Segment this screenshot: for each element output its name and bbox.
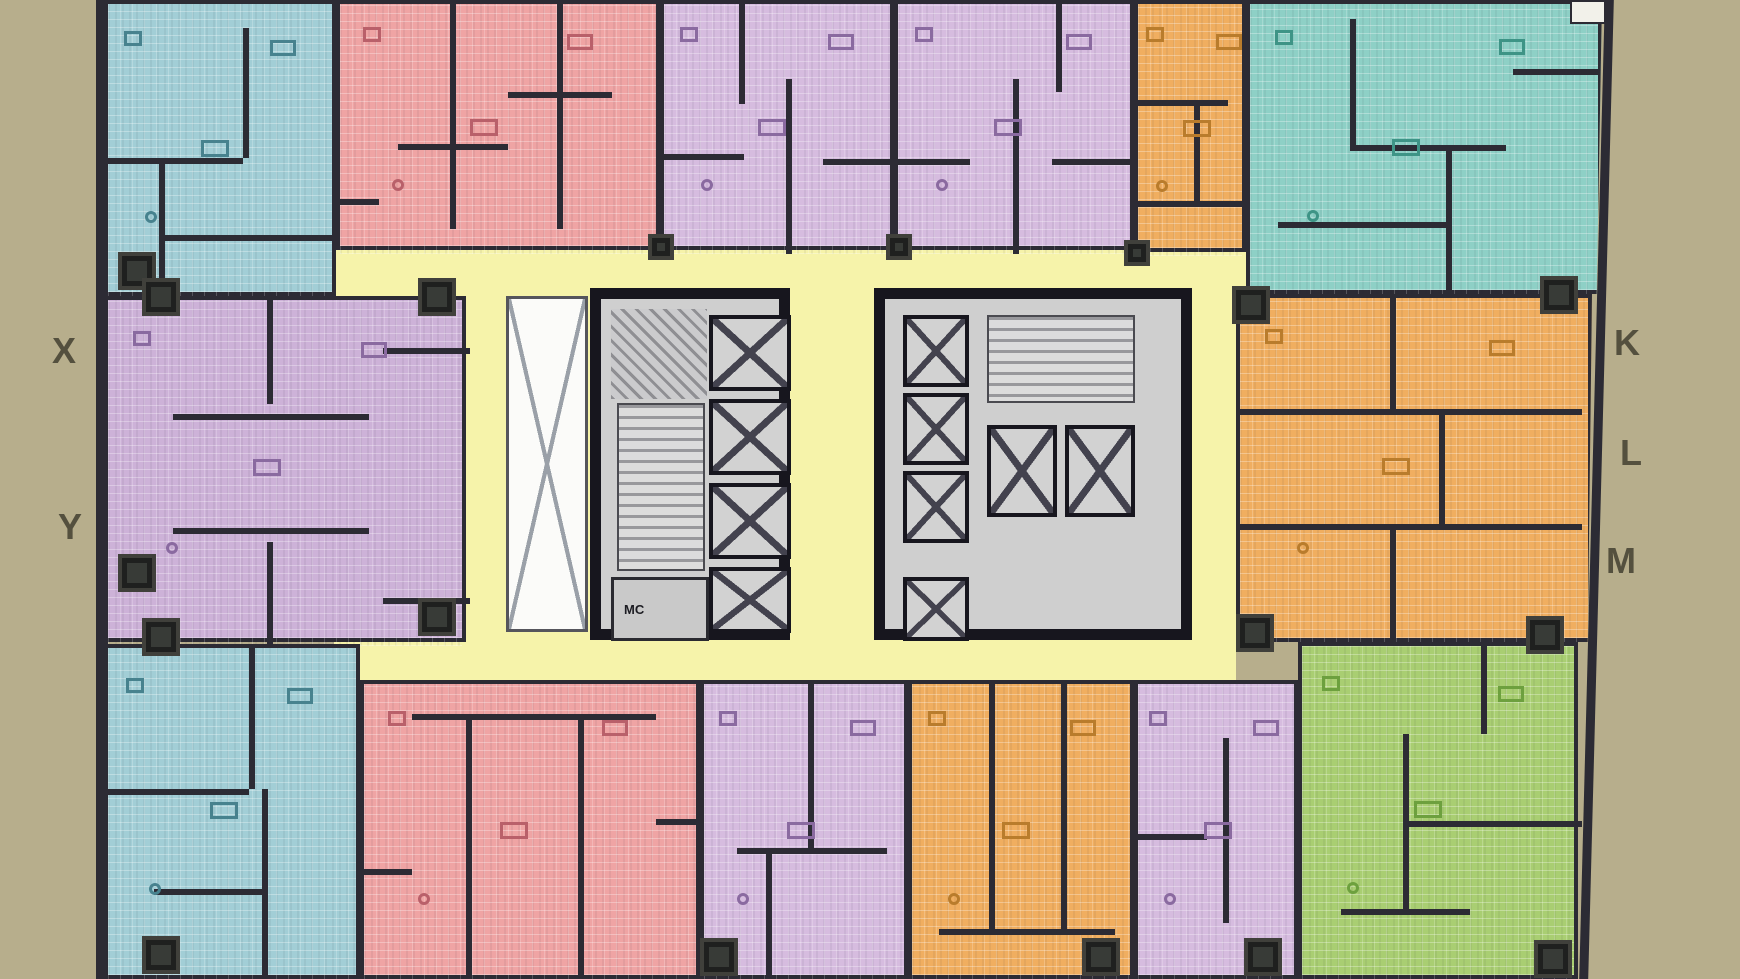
core-east <box>874 288 1192 640</box>
furniture-glyph <box>948 893 960 905</box>
interior-wall <box>159 235 340 241</box>
furniture-glyph <box>1156 180 1168 192</box>
interior-wall <box>1390 524 1396 646</box>
column-marker <box>142 278 180 316</box>
interior-wall <box>262 789 268 979</box>
furniture-glyph <box>1216 34 1242 50</box>
furniture-glyph <box>1066 34 1092 50</box>
grid-letter-l: L <box>1620 432 1642 474</box>
interior-wall <box>898 159 970 165</box>
grid-letter-k: K <box>1614 322 1640 364</box>
furniture-glyph <box>126 678 144 693</box>
column-marker <box>1244 938 1282 976</box>
interior-wall <box>786 79 792 254</box>
column-marker <box>886 234 912 260</box>
floor-plan: MC XYKLM <box>0 0 1740 979</box>
elevator-shaft-icon <box>903 393 969 465</box>
stair-shaft-x-icon <box>506 296 588 632</box>
interior-wall <box>989 684 995 929</box>
core-west: MC <box>590 288 790 640</box>
column-marker <box>1534 940 1572 978</box>
furniture-glyph <box>928 711 946 726</box>
furniture-glyph <box>201 140 229 157</box>
column-marker <box>1232 286 1270 324</box>
unit-orange-bottom <box>908 680 1134 979</box>
interior-wall <box>578 714 584 979</box>
machine-room-label: MC <box>624 602 644 617</box>
furniture-glyph <box>915 27 933 42</box>
grid-letter-y: Y <box>58 506 82 548</box>
interior-wall <box>766 848 772 979</box>
interior-wall <box>1341 909 1470 915</box>
furniture-glyph <box>787 822 815 839</box>
interior-wall <box>249 648 255 789</box>
unit-teal-bottom-left <box>104 644 360 979</box>
column-marker <box>1540 276 1578 314</box>
column-marker <box>1236 614 1274 652</box>
machine-room: MC <box>611 577 709 641</box>
interior-wall <box>1350 19 1356 145</box>
unit-pink-top <box>336 0 660 250</box>
furniture-glyph <box>1164 893 1176 905</box>
furniture-glyph <box>124 31 142 46</box>
interior-wall <box>737 848 887 854</box>
furniture-glyph <box>145 211 157 223</box>
unit-purple-bottom-b <box>1134 680 1298 979</box>
furniture-glyph <box>1499 39 1525 55</box>
interior-wall <box>1439 409 1445 524</box>
interior-wall <box>173 414 368 420</box>
interior-wall <box>108 789 249 795</box>
elevator-shaft-icon <box>1065 425 1135 517</box>
unit-pink-bottom <box>360 680 700 979</box>
furniture-glyph <box>1307 210 1319 222</box>
interior-wall <box>664 154 744 160</box>
furniture-glyph <box>392 179 404 191</box>
interior-wall <box>243 28 249 158</box>
furniture-glyph <box>994 119 1022 136</box>
stairs-icon <box>987 315 1135 403</box>
furniture-glyph <box>470 119 498 136</box>
interior-wall <box>1138 100 1228 106</box>
interior-wall <box>1013 79 1019 254</box>
furniture-glyph <box>1322 676 1340 691</box>
furniture-glyph <box>850 720 876 736</box>
furniture-glyph <box>418 893 430 905</box>
elevator-shaft-icon <box>903 315 969 387</box>
interior-wall <box>1056 4 1062 92</box>
furniture-glyph <box>1183 120 1211 137</box>
grid-letter-x: X <box>52 330 76 372</box>
column-marker <box>142 936 180 974</box>
furniture-glyph <box>1204 822 1232 839</box>
interior-wall <box>1240 524 1582 530</box>
furniture-glyph <box>1382 458 1410 475</box>
furniture-glyph <box>1414 801 1442 818</box>
furniture-glyph <box>936 179 948 191</box>
interior-wall <box>364 869 412 875</box>
interior-wall <box>557 4 563 229</box>
interior-wall <box>1513 69 1598 75</box>
unit-purple-left-xy <box>104 296 466 642</box>
furniture-glyph <box>361 342 387 358</box>
furniture-glyph <box>1347 882 1359 894</box>
unit-orange-right-klm <box>1236 294 1592 642</box>
interior-wall <box>656 819 704 825</box>
elevator-shaft-icon <box>987 425 1057 517</box>
elevator-shaft-icon <box>903 577 969 641</box>
column-marker <box>118 554 156 592</box>
interior-wall <box>154 889 262 895</box>
interior-wall <box>398 144 508 150</box>
furniture-glyph <box>701 179 713 191</box>
building-left-wall <box>96 0 108 979</box>
furniture-glyph <box>737 893 749 905</box>
furniture-glyph <box>1146 27 1164 42</box>
interior-wall <box>508 92 612 98</box>
furniture-glyph <box>133 331 151 346</box>
interior-wall <box>1052 159 1138 165</box>
furniture-glyph <box>270 40 296 56</box>
interior-wall <box>1138 834 1207 840</box>
grid-letter-m: M <box>1606 540 1636 582</box>
interior-wall <box>1194 100 1200 201</box>
elevator-shaft-icon <box>903 471 969 543</box>
column-marker <box>418 278 456 316</box>
interior-wall <box>823 159 898 165</box>
interior-wall <box>383 348 470 354</box>
interior-wall <box>466 714 472 979</box>
furniture-glyph <box>388 711 406 726</box>
unit-texture <box>1240 298 1588 646</box>
interior-wall <box>267 300 273 404</box>
furniture-glyph <box>602 720 628 736</box>
interior-wall <box>1061 684 1067 929</box>
elevator-shaft-icon <box>709 483 791 559</box>
unit-teal-top-right <box>1246 0 1602 294</box>
facade-notch <box>1570 0 1606 24</box>
furniture-glyph <box>500 822 528 839</box>
elevator-shaft-icon <box>709 399 791 475</box>
stairs-icon <box>617 403 705 571</box>
interior-wall <box>1138 201 1250 207</box>
furniture-glyph <box>363 27 381 42</box>
furniture-glyph <box>567 34 593 50</box>
interior-wall <box>1390 298 1396 409</box>
furniture-glyph <box>1070 720 1096 736</box>
interior-wall <box>1278 222 1445 228</box>
furniture-glyph <box>1002 822 1030 839</box>
column-marker <box>700 938 738 976</box>
stairs-icon <box>611 309 707 399</box>
furniture-glyph <box>1392 139 1420 156</box>
interior-wall <box>1446 145 1452 298</box>
unit-orange-top <box>1134 0 1246 252</box>
column-marker <box>1526 616 1564 654</box>
interior-wall <box>173 528 368 534</box>
unit-texture <box>364 684 696 979</box>
furniture-glyph <box>719 711 737 726</box>
unit-texture <box>340 4 656 254</box>
furniture-glyph <box>1498 686 1524 702</box>
unit-purple-bottom-a <box>700 680 908 979</box>
furniture-glyph <box>287 688 313 704</box>
interior-wall <box>1350 145 1507 151</box>
corridor-segment <box>334 246 1362 302</box>
column-marker <box>418 598 456 636</box>
furniture-glyph <box>149 883 161 895</box>
column-marker <box>142 618 180 656</box>
furniture-glyph <box>166 542 178 554</box>
unit-green-bottom-right <box>1298 642 1578 979</box>
elevator-shaft-icon <box>709 315 791 391</box>
furniture-glyph <box>253 459 281 476</box>
interior-wall <box>450 4 456 229</box>
unit-purple-top-a <box>660 0 894 250</box>
furniture-glyph <box>1253 720 1279 736</box>
furniture-glyph <box>1265 329 1283 344</box>
interior-wall <box>1403 821 1582 827</box>
furniture-glyph <box>758 119 786 136</box>
interior-wall <box>739 4 745 104</box>
furniture-glyph <box>1297 542 1309 554</box>
interior-wall <box>1240 409 1582 415</box>
unit-purple-top-b <box>894 0 1134 250</box>
furniture-glyph <box>1489 340 1515 356</box>
furniture-glyph <box>680 27 698 42</box>
furniture-glyph <box>210 802 238 819</box>
column-marker <box>1082 938 1120 976</box>
furniture-glyph <box>1149 711 1167 726</box>
interior-wall <box>939 929 1115 935</box>
interior-wall <box>340 199 379 205</box>
interior-wall <box>267 542 273 646</box>
column-marker <box>1124 240 1150 266</box>
furniture-glyph <box>1275 30 1293 45</box>
furniture-glyph <box>828 34 854 50</box>
elevator-shaft-icon <box>709 567 791 633</box>
column-marker <box>648 234 674 260</box>
interior-wall <box>1481 646 1487 734</box>
interior-wall <box>108 158 243 164</box>
